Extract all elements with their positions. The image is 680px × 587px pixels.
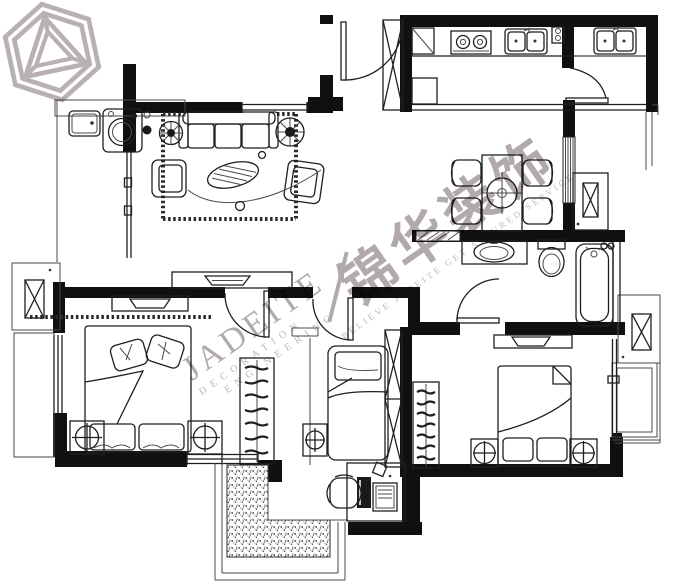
lounge-chair — [283, 160, 324, 205]
utility-walls — [55, 100, 185, 262]
rug-curve — [188, 170, 321, 203]
tv-cabinet-living — [172, 272, 292, 288]
decor-dot2 — [236, 202, 245, 211]
secondary-sink — [575, 27, 646, 56]
nightstand-lamp-bedroom3 — [471, 439, 597, 467]
bathroom-door — [457, 279, 499, 323]
bathtub — [576, 244, 613, 326]
armchair — [152, 160, 186, 197]
decor-dot — [259, 152, 266, 159]
kitchen-pass-through — [412, 105, 646, 111]
laundry-sink — [69, 111, 100, 136]
floorplan-page: JADEITE DECORATION ENGINEERING 锦华装饰 BELI… — [0, 0, 680, 587]
gas-stove — [451, 31, 491, 54]
nightstand-lamp — [70, 421, 222, 454]
toilet — [538, 240, 565, 277]
middle-bedroom-door — [313, 298, 353, 340]
kitchen-sink — [505, 28, 547, 54]
floorplan-drawing — [0, 0, 680, 587]
clothes-rack-bedroom3 — [413, 382, 439, 468]
hall-threshold — [292, 328, 318, 465]
entry-door — [341, 22, 403, 80]
desk-chair — [327, 475, 361, 508]
kitchen2-door — [566, 68, 608, 103]
coffee-table — [205, 157, 261, 193]
nightstand-lamp-middle — [303, 424, 327, 456]
dining-east-wall — [646, 105, 658, 170]
dining-table — [481, 155, 523, 231]
bathroom-vanity — [462, 240, 527, 264]
flue-duct — [573, 173, 608, 230]
kitchen-counter — [412, 27, 646, 104]
tv-cabinet-bedroom3 — [494, 335, 572, 348]
clothes-rack-master — [240, 358, 274, 464]
ac-platform-left — [12, 263, 60, 330]
master-bedroom-door — [225, 291, 269, 337]
desk — [347, 462, 405, 521]
single-bed — [328, 346, 388, 460]
bathroom-east-wall — [601, 242, 620, 322]
potted-plant — [160, 118, 305, 146]
double-bed-bedroom3 — [498, 366, 571, 466]
hatched-wall-segment — [416, 231, 460, 241]
utility-sliding-door — [125, 152, 132, 258]
dresser — [112, 296, 188, 311]
master-bed — [85, 326, 191, 452]
sofa — [179, 112, 278, 148]
balcony-right — [612, 295, 660, 443]
